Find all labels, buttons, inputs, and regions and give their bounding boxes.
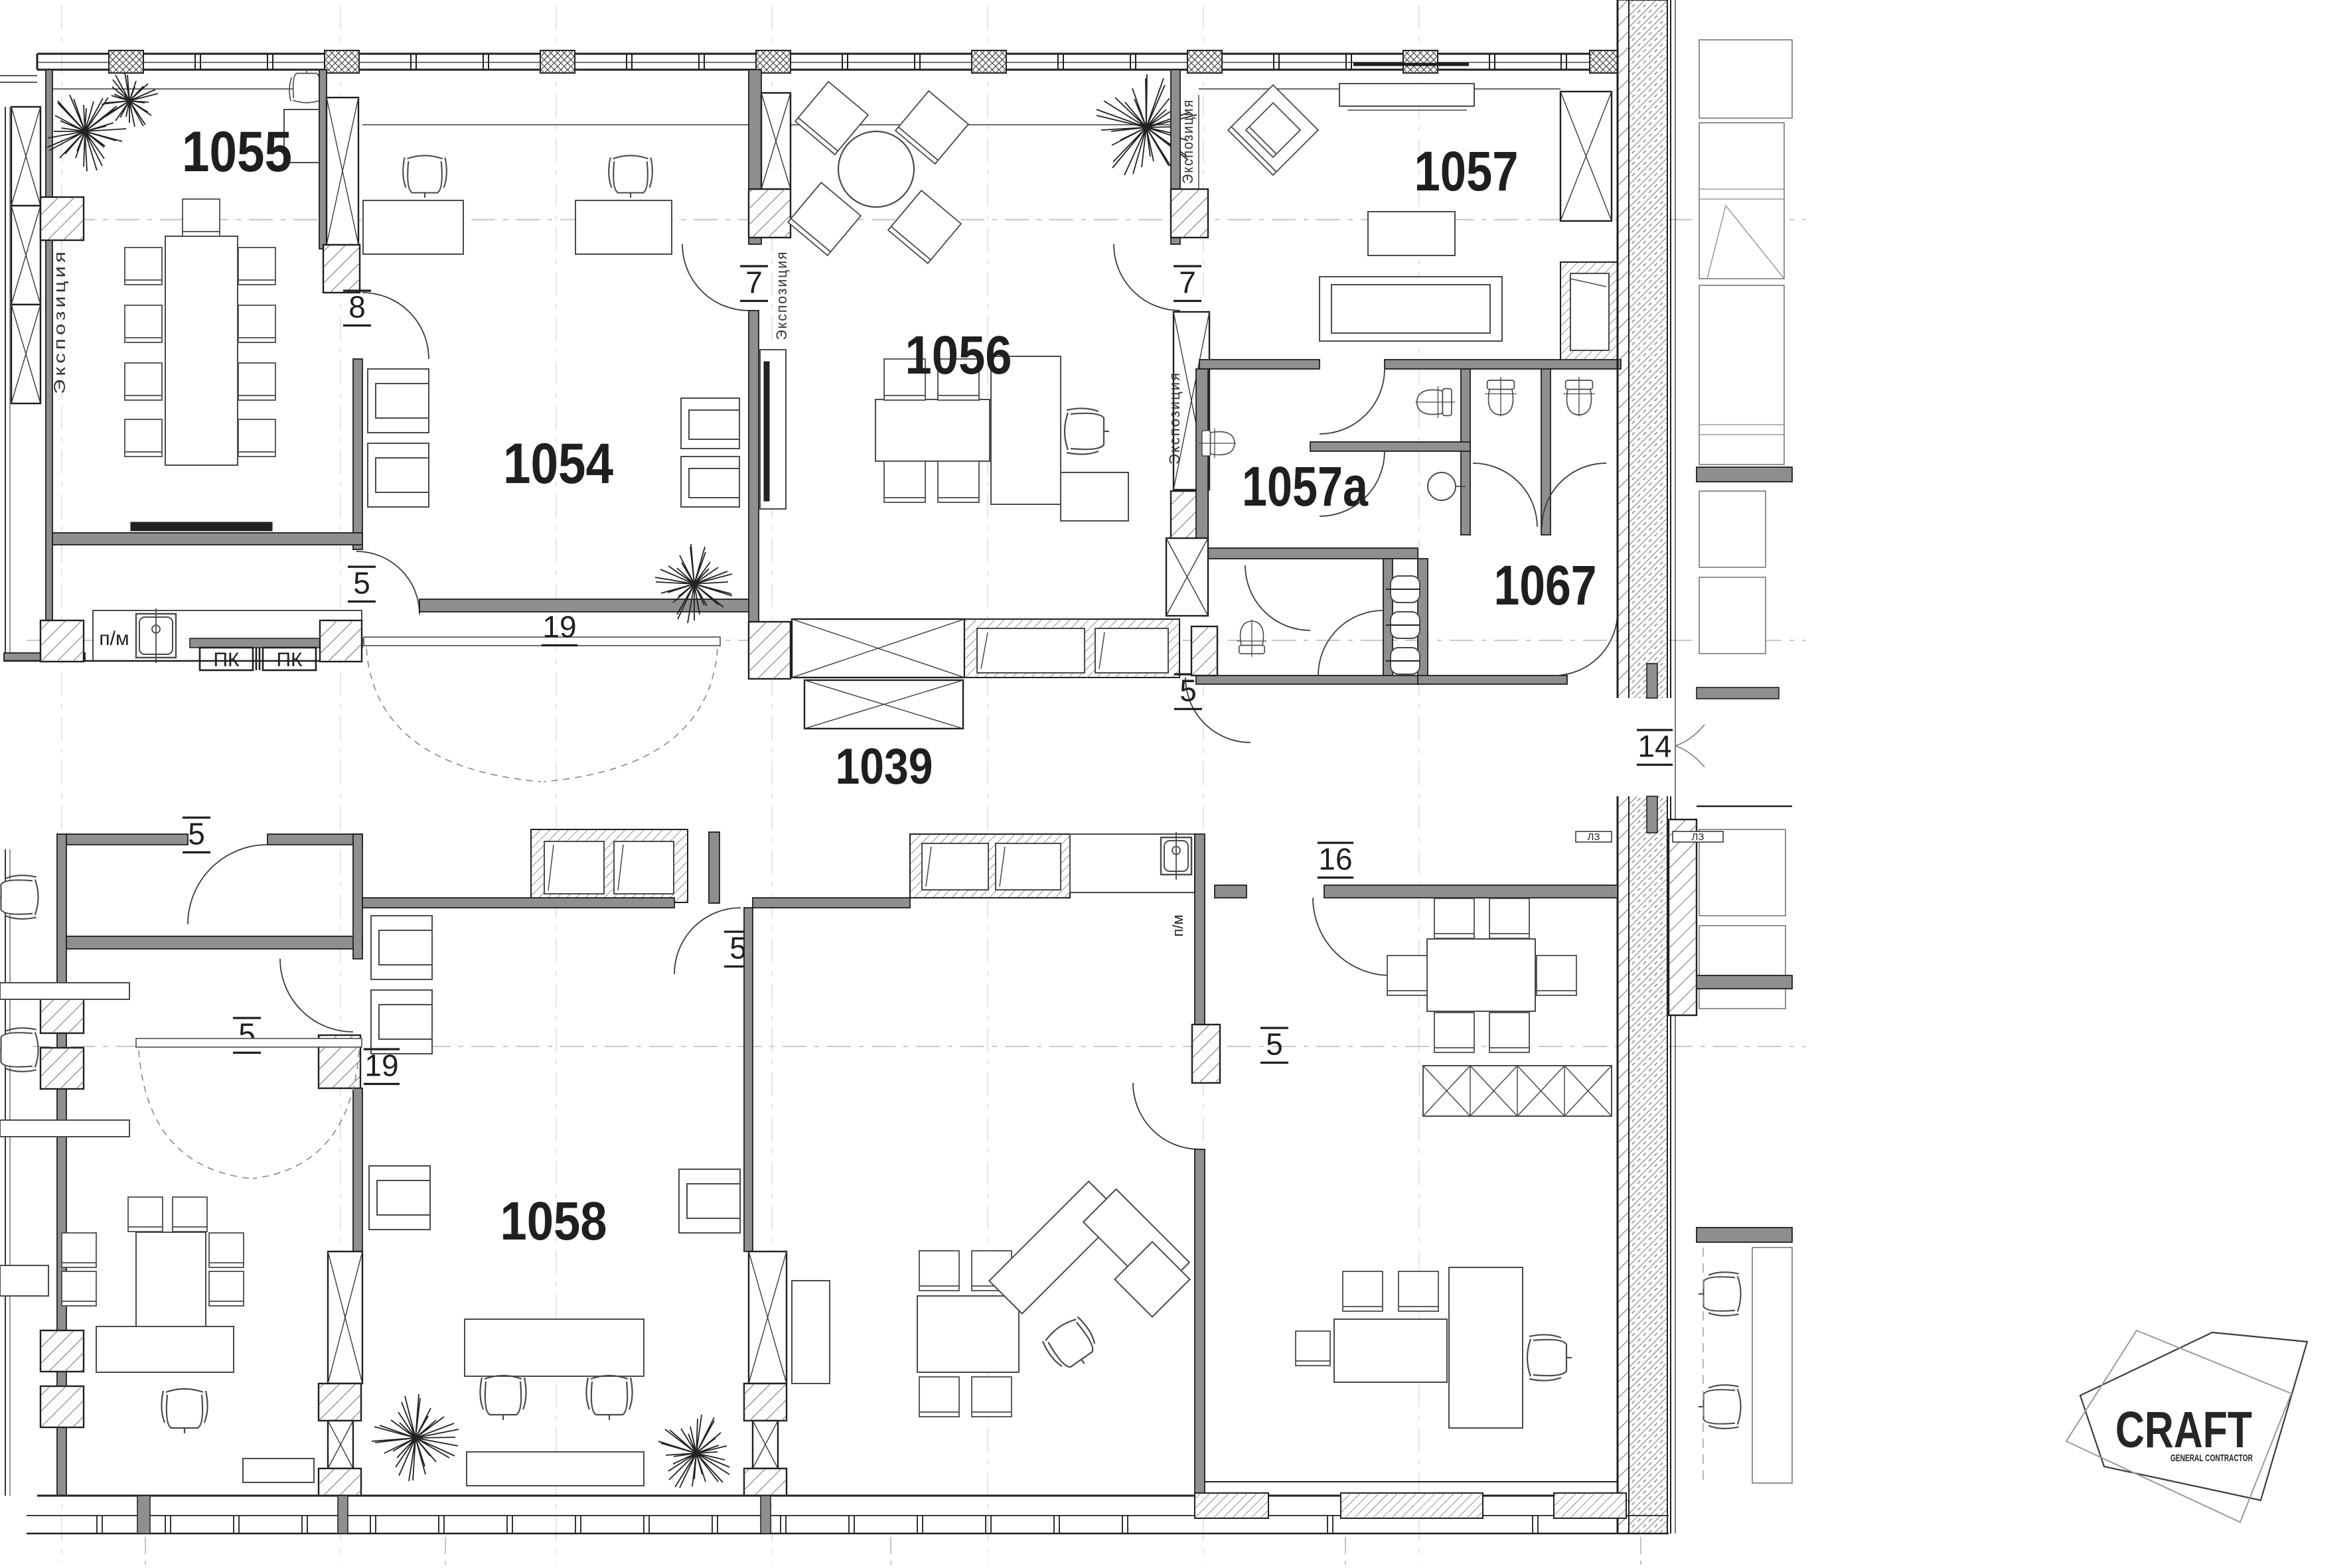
svg-text:8: 8: [348, 290, 366, 324]
svg-text:1067: 1067: [1494, 554, 1597, 616]
svg-text:ЛЗ: ЛЗ: [1588, 831, 1600, 843]
svg-text:7: 7: [1179, 265, 1196, 300]
svg-text:п/м: п/м: [1170, 914, 1186, 936]
svg-text:Экспозиция: Экспозиция: [773, 251, 790, 340]
svg-text:1057: 1057: [1414, 140, 1519, 202]
svg-text:п/м: п/м: [99, 628, 129, 650]
svg-text:16: 16: [1318, 842, 1352, 877]
svg-text:14: 14: [1637, 729, 1671, 764]
svg-text:19: 19: [364, 1048, 398, 1083]
svg-text:Экспозиция: Экспозиция: [1179, 99, 1196, 184]
svg-text:5: 5: [1179, 674, 1197, 708]
svg-text:1058: 1058: [500, 1191, 607, 1251]
svg-text:Экспозиция: Экспозиция: [1166, 372, 1183, 464]
svg-text:ЛЗ: ЛЗ: [1692, 831, 1705, 843]
svg-text:5: 5: [1266, 1027, 1283, 1062]
svg-text:Экспозиция: Экспозиция: [51, 248, 69, 394]
svg-text:19: 19: [542, 610, 576, 644]
svg-text:1054: 1054: [503, 432, 613, 496]
svg-text:7: 7: [745, 265, 763, 300]
svg-text:1055: 1055: [182, 120, 292, 184]
svg-text:1057a: 1057a: [1242, 455, 1369, 518]
svg-text:CRAFT: CRAFT: [2115, 1401, 2252, 1459]
svg-text:GENERAL CONTRACTOR: GENERAL CONTRACTOR: [2170, 1453, 2253, 1464]
svg-text:ПК: ПК: [213, 649, 240, 671]
svg-text:5: 5: [353, 566, 370, 601]
svg-text:ПК: ПК: [276, 649, 303, 671]
svg-text:1039: 1039: [836, 739, 933, 795]
svg-text:1056: 1056: [905, 325, 1012, 386]
svg-text:5: 5: [188, 817, 205, 851]
